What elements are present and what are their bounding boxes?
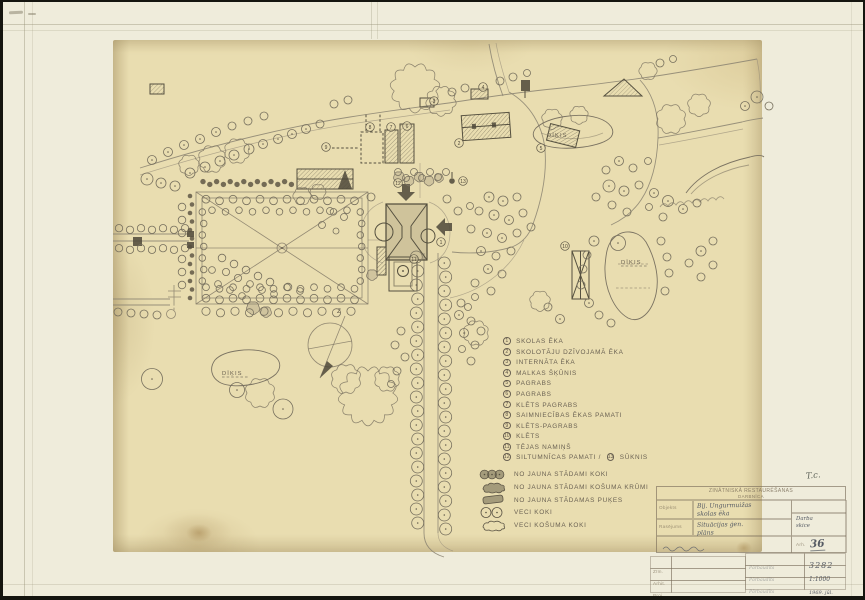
plan-marker-6: 6 bbox=[403, 122, 412, 131]
plan-marker-13: 13 bbox=[459, 177, 468, 186]
legend-item: 6PAGRABS bbox=[503, 389, 648, 400]
symbol-legend-label: NO JAUNA STĀDAMI KOKI bbox=[514, 470, 608, 478]
legend-item-number: 4 bbox=[503, 369, 511, 377]
svg-text:3: 3 bbox=[433, 99, 436, 105]
scan-edge bbox=[0, 0, 3, 600]
svg-text:1: 1 bbox=[440, 240, 443, 246]
stamp-cell bbox=[791, 500, 847, 513]
paper-stain bbox=[186, 524, 212, 542]
new-shrubs-symbol bbox=[479, 481, 509, 494]
plan-marker-5: 5 bbox=[537, 144, 546, 153]
plan-marker-11: 11 bbox=[410, 255, 419, 264]
section-mark bbox=[167, 285, 182, 319]
scan-edge bbox=[0, 0, 865, 2]
svg-text:11: 11 bbox=[411, 257, 416, 263]
stamp-date-cell: 1969. jūl. bbox=[804, 577, 846, 590]
symbol-legend-label: VECI KOKI bbox=[514, 508, 552, 516]
symbol-legend-label: NO JAUNA STĀDAMAS PUĶES bbox=[514, 496, 623, 504]
symbol-legend-item: VECI KOŠUMA KOKI bbox=[479, 519, 649, 532]
legend-item-number: 13 bbox=[607, 453, 615, 461]
legend-item-number: 9 bbox=[503, 422, 511, 430]
svg-text:9: 9 bbox=[325, 145, 328, 151]
new-trees-symbol bbox=[479, 468, 509, 481]
legend-item-label: SKOLAS ĒKA bbox=[516, 337, 563, 345]
legend-item: 5PAGRABS bbox=[503, 378, 648, 389]
legend-item-number: 2 bbox=[503, 348, 511, 356]
legend-item-label: KLĒTS bbox=[516, 432, 540, 440]
old-shrubs-symbol bbox=[479, 519, 509, 532]
legend-item-number: 10 bbox=[503, 432, 511, 440]
legend-item-label: KLĒTS PAGRABS bbox=[516, 401, 578, 409]
symbol-legend-label: NO JAUNA STĀDAMI KOŠUMA KRŪMI bbox=[514, 483, 649, 491]
symbol-legend-label: VECI KOŠUMA KOKI bbox=[514, 521, 587, 529]
plan-marker-10: 10 bbox=[561, 242, 570, 251]
symbol-legend-item: NO JAUNA STĀDAMI KOKI bbox=[479, 468, 649, 481]
plan-marker-1: 1 bbox=[437, 238, 446, 247]
compass-rose: Z bbox=[308, 308, 352, 378]
stamp-sig-blank bbox=[671, 580, 746, 593]
legend-item-number: 1 bbox=[503, 337, 511, 345]
legend-item: 12 SILTUMNĪCAS PAMATI / 13 SŪKNIS bbox=[503, 452, 648, 463]
legend-item-label: KLĒTS-PAGRABS bbox=[516, 422, 578, 430]
ponds: DĪĶIS DĪĶIS DĪĶIS bbox=[212, 115, 764, 385]
legend-item: 9KLĒTS-PAGRABS bbox=[503, 420, 648, 431]
stamp-note-cell: Darba skice bbox=[791, 513, 847, 536]
svg-text:13: 13 bbox=[460, 179, 466, 185]
svg-text:10: 10 bbox=[562, 244, 568, 250]
legend-item-label: TĒJAS NAMIŅŠ bbox=[516, 443, 571, 451]
legend-item: 11TĒJAS NAMIŅŠ bbox=[503, 441, 648, 452]
stamp-sig-label: Proj. bbox=[650, 580, 672, 593]
legend-item: 1SKOLAS ĒKA bbox=[503, 336, 648, 347]
scanned-site-plan: DĪĶIS DĪĶIS DĪĶIS bbox=[0, 0, 865, 600]
signature-squiggle bbox=[661, 544, 725, 553]
legend-item-label: INTERNĀTA ĒKA bbox=[516, 358, 575, 366]
legend-item: 4MALKAS ŠĶŪNIS bbox=[503, 368, 648, 379]
stamp-table: ZINĀTNISKĀ RESTAURĒŠANAS DARBNĪCA Objekt… bbox=[656, 486, 846, 553]
legend-item-label: PAGRABS bbox=[516, 390, 551, 398]
svg-text:4: 4 bbox=[482, 85, 485, 91]
plan-markers: 1 2 3 4 5 6 7 8 9 10 11 12 13 bbox=[322, 83, 570, 264]
plan-marker-12: 12 bbox=[394, 179, 403, 188]
symbol-legend-item: NO JAUNA STĀDAMI KOŠUMA KRŪMI bbox=[479, 481, 649, 494]
legend-item: 3INTERNĀTA ĒKA bbox=[503, 357, 648, 368]
plan-marker-8: 8 bbox=[366, 123, 375, 132]
stamp-object-value-cell: Bij. Ungurmuižas skolas ēka bbox=[693, 500, 792, 519]
stamp-checked-cell: Pārbaudīts bbox=[745, 577, 805, 590]
stamp-drawing-label-cell: Rasējums bbox=[656, 519, 693, 536]
legend-list: 1SKOLAS ĒKA 2SKOLOTĀJU DZĪVOJAMĀ ĒKA 3IN… bbox=[503, 336, 648, 463]
legend-item-number: 5 bbox=[503, 380, 511, 388]
new-flowers-symbol bbox=[479, 493, 509, 506]
pond-label: DĪĶIS bbox=[621, 259, 642, 266]
svg-text:12: 12 bbox=[395, 181, 401, 187]
symbol-legend: NO JAUNA STĀDAMI KOKI NO JAUNA STĀDAMI K… bbox=[479, 468, 649, 531]
svg-text:5: 5 bbox=[540, 146, 543, 152]
legend-item-label: SŪKNIS bbox=[620, 453, 648, 461]
symbol-legend-item: VECI KOKI bbox=[479, 506, 649, 519]
legend-item-number: 7 bbox=[503, 401, 511, 409]
formal-garden bbox=[196, 192, 368, 304]
legend-item-label: PAGRABS bbox=[516, 379, 551, 387]
buildings bbox=[133, 79, 642, 299]
legend-item: 8SAIMNIECĪBAS ĒKAS PAMATI bbox=[503, 410, 648, 421]
svg-text:6: 6 bbox=[406, 124, 409, 130]
stamp-drawing-value-cell: Situācijas ģen. plāns bbox=[693, 519, 792, 536]
stamp-corner-note: T.c. bbox=[806, 470, 822, 481]
legend-item-label: SAIMNIECĪBAS ĒKAS PAMATI bbox=[516, 411, 622, 419]
pond-label: DĪĶIS bbox=[222, 370, 243, 377]
stamp-header: ZINĀTNISKĀ RESTAURĒŠANAS DARBNĪCA bbox=[656, 486, 846, 500]
scan-edge bbox=[0, 596, 865, 600]
legend-item-number: 8 bbox=[503, 411, 511, 419]
legend-item-number: 12 bbox=[503, 453, 511, 461]
plan-marker-4: 4 bbox=[479, 83, 488, 92]
plan-marker-3: 3 bbox=[430, 97, 439, 106]
svg-text:8: 8 bbox=[369, 125, 372, 131]
old-trees-symbol bbox=[479, 506, 509, 519]
symbol-legend-item: NO JAUNA STĀDAMAS PUĶES bbox=[479, 493, 649, 506]
legend-item: 10KLĒTS bbox=[503, 431, 648, 442]
legend-item-number: 6 bbox=[503, 390, 511, 398]
stamp-sheet-cell: Arh. 36 bbox=[791, 536, 847, 553]
stamp-signature-cell bbox=[656, 536, 792, 553]
legend-item-label: SKOLOTĀJU DZĪVOJAMĀ ĒKA bbox=[516, 348, 623, 356]
plan-marker-9: 9 bbox=[322, 143, 331, 152]
legend-item-number: 11 bbox=[503, 443, 511, 451]
plan-marker-7: 7 bbox=[387, 123, 396, 132]
svg-text:2: 2 bbox=[458, 141, 461, 147]
stamp-object-label-cell: Objekts bbox=[656, 500, 693, 519]
title-block-stamp: T.c. ZINĀTNISKĀ RESTAURĒŠANAS DARBNĪCA O… bbox=[650, 462, 863, 600]
legend-item-number: 3 bbox=[503, 359, 511, 367]
plan-marker-2: 2 bbox=[455, 139, 464, 148]
legend-item: 2SKOLOTĀJU DZĪVOJAMĀ ĒKA bbox=[503, 347, 648, 358]
svg-text:7: 7 bbox=[390, 125, 393, 131]
east-entry-arrow bbox=[436, 218, 452, 236]
legend-item-label: MALKAS ŠĶŪNIS bbox=[516, 369, 577, 377]
legend-item-label: SILTUMNĪCAS PAMATI / bbox=[516, 453, 601, 461]
legend-item: 7KLĒTS PAGRABS bbox=[503, 399, 648, 410]
